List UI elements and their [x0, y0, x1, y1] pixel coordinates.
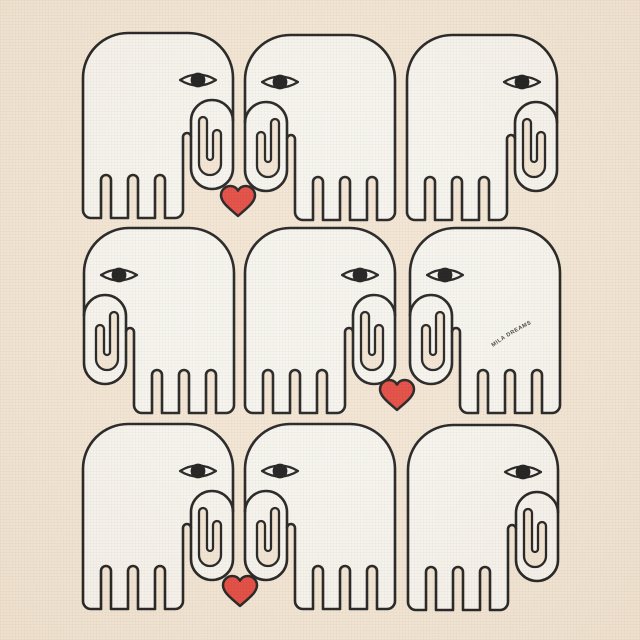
- elephant-row1-mid: [245, 35, 395, 220]
- artwork-page: { "artwork": { "description": "Seamless-…: [0, 0, 640, 640]
- elephant-row2-left: [84, 228, 234, 413]
- elephant-row3-left: [83, 424, 233, 609]
- elephant-pattern-svg: MILA DREAMS: [0, 0, 640, 640]
- elephant-pattern-artwork: MILA DREAMS: [0, 0, 640, 640]
- heart-row2-icon: [380, 380, 414, 410]
- elephant-row2-right: [410, 228, 560, 413]
- elephant-row3-mid: [245, 424, 395, 609]
- elephant-row3-right: [408, 425, 558, 610]
- elephant-row2-mid: [245, 228, 395, 413]
- heart-row1-icon: [221, 186, 255, 216]
- elephant-row1-right: [407, 35, 557, 220]
- elephant-row1-left: [83, 33, 233, 218]
- heart-row3-icon: [223, 576, 257, 606]
- pattern-scene: [83, 33, 560, 610]
